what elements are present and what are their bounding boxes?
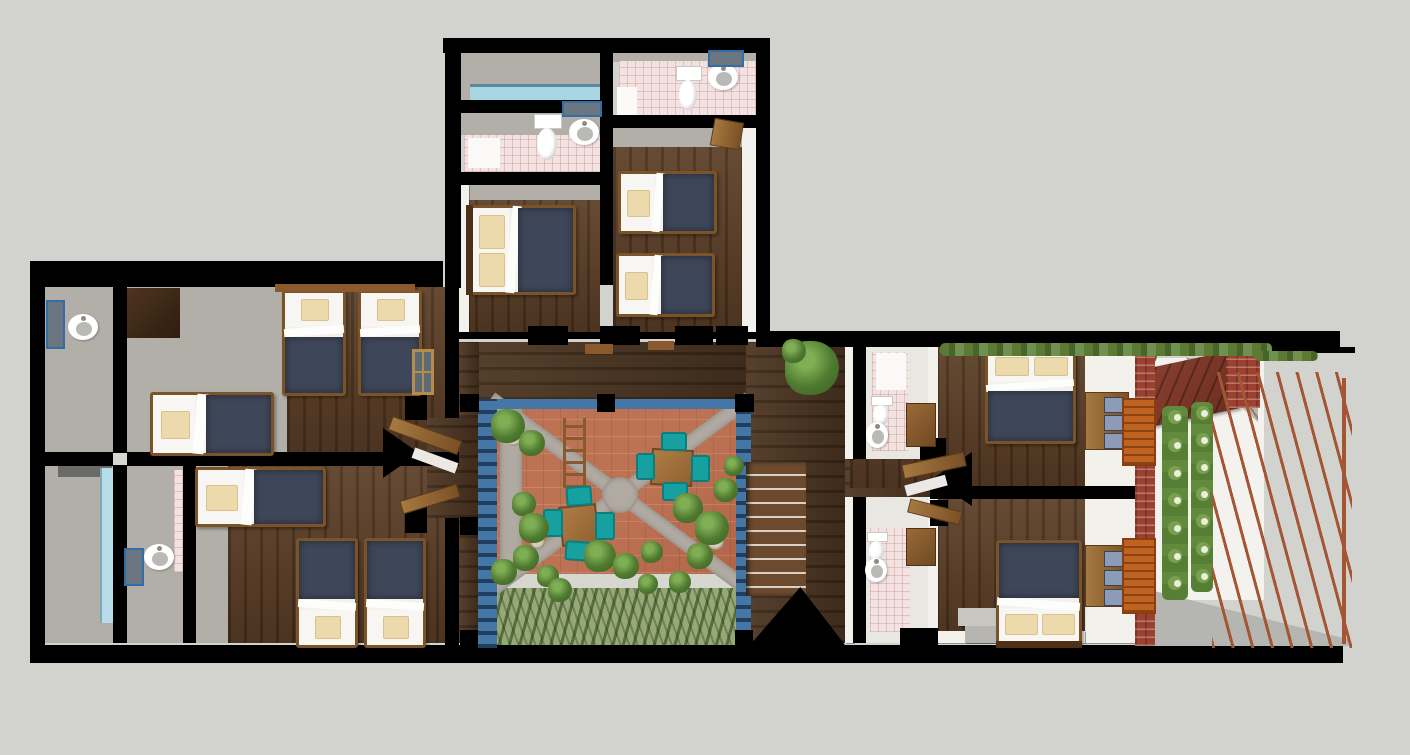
hedge-flower (1174, 553, 1181, 560)
bed-blanket (988, 391, 1073, 441)
potted-plant (724, 456, 744, 476)
bed-top1-double (470, 205, 576, 295)
bed-east2-double (996, 540, 1082, 644)
open-door-leaf (710, 118, 744, 151)
bed-pillow (479, 215, 504, 249)
bed-pillow (1005, 614, 1037, 635)
sink (865, 558, 887, 582)
bed-west1-twin-a (282, 290, 346, 396)
sink (569, 119, 599, 145)
hedge-flower (1201, 437, 1208, 444)
wall-segment (600, 326, 640, 345)
wood-window (412, 349, 434, 395)
sink-basin (716, 72, 733, 86)
bed-pillow (383, 616, 410, 639)
sink-basin (76, 322, 93, 336)
pergola-post (460, 394, 479, 412)
potted-plant (695, 511, 729, 545)
wall-segment (853, 343, 866, 459)
toilet (676, 66, 700, 112)
toilet (534, 114, 560, 162)
bed-blanket (367, 541, 423, 599)
bed-pillow-zone (621, 174, 654, 231)
bed-pillow-zone (198, 470, 243, 524)
wooden-ladder (563, 418, 586, 488)
bathroom-cabinet (906, 403, 936, 447)
dresser-drawer (1104, 397, 1123, 412)
wall-segment (30, 261, 45, 663)
wall-segment (113, 287, 127, 452)
trellis-pole (1342, 378, 1346, 644)
patio-chair (661, 432, 687, 451)
bed-top2-twin-a (618, 171, 717, 234)
headboard-strip (275, 284, 415, 292)
wall-segment (600, 52, 613, 285)
bed-pillow-zone (367, 610, 423, 645)
potted-plant (714, 478, 738, 502)
patio-chair (636, 453, 655, 480)
hedge-flower (1201, 464, 1208, 471)
faucet-dot (81, 316, 86, 321)
wall-segment (445, 38, 461, 288)
potted-plant (782, 339, 806, 363)
potted-plant (641, 541, 663, 563)
bedroom-t2-wallstrip (742, 128, 756, 332)
wall-segment (756, 38, 770, 347)
toilet-bowl (679, 80, 697, 110)
sink (68, 314, 98, 340)
hedge-flower (1174, 414, 1181, 421)
bed-pillow (206, 485, 238, 511)
potted-plant (519, 513, 549, 543)
courtyard-lawn (492, 588, 748, 645)
bed-pillow (377, 299, 405, 321)
bed-pillow (315, 616, 342, 639)
sink-basin (577, 127, 594, 141)
bed-blanket (254, 470, 323, 524)
pergola-post (735, 630, 753, 648)
toilet-tank (676, 66, 702, 81)
wall-vines (1254, 351, 1318, 361)
bed-blanket (999, 543, 1079, 598)
bed-blanket (661, 256, 712, 314)
brick-planter (1122, 398, 1156, 466)
pergola-post (597, 394, 615, 412)
bed-pillow (479, 253, 504, 287)
hedge-flower (1174, 442, 1181, 449)
wall-segment (675, 326, 713, 345)
skylight-strip (470, 84, 600, 100)
wall-mirror (46, 300, 65, 349)
bed-pillow (1034, 357, 1068, 377)
faucet-dot (157, 546, 162, 551)
wall-mirror (562, 101, 602, 117)
bed-pillow (995, 357, 1029, 377)
potted-plant (669, 571, 691, 593)
door-threshold (113, 453, 127, 465)
patio-chair (565, 485, 592, 507)
bed-blanket (206, 395, 271, 453)
wall-segment (528, 326, 568, 345)
bed-headboard (996, 641, 1082, 648)
faucet-dot (874, 559, 879, 564)
bed-east1-double (985, 348, 1076, 444)
wall-mirror (124, 548, 144, 586)
dresser-drawer (1104, 433, 1123, 448)
wall-segment (405, 393, 427, 420)
hedge-flower (1201, 546, 1208, 553)
potted-plant (584, 540, 616, 572)
toilet-bowl (537, 128, 557, 160)
wall-segment (716, 326, 748, 345)
wardrobe (127, 288, 180, 338)
staircase (746, 462, 806, 596)
bedroom-t1-band (459, 185, 600, 201)
potted-plant (519, 430, 545, 456)
wall-segment (30, 645, 1343, 663)
pergola-post (460, 630, 478, 648)
faucet-dot (875, 424, 880, 429)
hedge-flower (1174, 497, 1181, 504)
sink (144, 544, 174, 570)
sink (708, 64, 738, 90)
bed-west2-twin-c (364, 538, 426, 648)
bed-headboard (466, 205, 473, 295)
sink-basin (152, 552, 169, 566)
dresser-drawer (1104, 589, 1123, 605)
bed-pillow-zone (299, 610, 355, 645)
bath-tl-pad (468, 138, 500, 168)
bath-w2-tile (174, 470, 183, 572)
door-mat (585, 344, 613, 354)
wall-vines (940, 343, 1272, 356)
wall-mirror (708, 50, 744, 67)
potted-plant (491, 559, 517, 585)
potted-plant (548, 578, 572, 602)
dresser-drawer (1104, 570, 1123, 586)
potted-plant (687, 543, 713, 569)
wall-segment (445, 518, 459, 645)
bed-blanket (518, 208, 573, 292)
potted-plant (513, 545, 539, 571)
bed-pillow (1042, 614, 1074, 635)
bed-pillow-zone (153, 395, 195, 453)
bed-west2-twin-b (296, 538, 358, 648)
garden-trellis (1212, 372, 1352, 648)
pergola-post (735, 394, 754, 412)
door-mat (648, 341, 674, 350)
bed-pillow (161, 411, 191, 439)
bed-blanket (663, 174, 714, 231)
bed-blanket (361, 337, 419, 393)
glassroom-glass (100, 468, 114, 623)
brick-planter (1122, 538, 1156, 614)
bed-blanket (285, 337, 343, 393)
faucet-dot (582, 121, 587, 126)
wall-segment (900, 628, 938, 645)
bed-pillow (627, 190, 650, 217)
hedge-flower (1201, 573, 1208, 580)
bathroom-cabinet (906, 528, 936, 566)
bed-top2-twin-b (616, 253, 715, 317)
bed-pillow-zone (619, 256, 652, 314)
potted-plant (638, 574, 658, 594)
bed-blanket (299, 541, 355, 599)
patio-chair (691, 455, 710, 482)
sink (866, 422, 888, 448)
toilet-tank (534, 114, 562, 129)
bed-pillow-zone (999, 608, 1079, 641)
dresser-drawer (1104, 551, 1123, 567)
bed-pillow-zone (361, 293, 419, 327)
bed-pillow (301, 299, 329, 321)
bed-west1-twin-c (150, 392, 274, 456)
sink-basin (872, 430, 884, 444)
potted-plant (613, 553, 639, 579)
patio-chair (595, 512, 615, 540)
hedge-flower (1174, 470, 1181, 477)
floor-plan-scene (0, 0, 1410, 755)
bed-pillow (625, 272, 648, 300)
dresser-drawer (1104, 415, 1123, 430)
hedge-flower (1201, 410, 1208, 417)
bath-e1-shower (876, 353, 906, 390)
courtyard-center-circle (602, 477, 638, 513)
hedge-flower (1174, 525, 1181, 532)
sink-basin (871, 565, 883, 578)
pergola-post (460, 517, 478, 535)
bed-pillow-zone (285, 293, 343, 327)
wall-segment (459, 172, 600, 185)
bed-pillow-zone (473, 208, 509, 292)
bed-west2-twin-a (195, 467, 326, 527)
wall-segment (445, 287, 459, 418)
